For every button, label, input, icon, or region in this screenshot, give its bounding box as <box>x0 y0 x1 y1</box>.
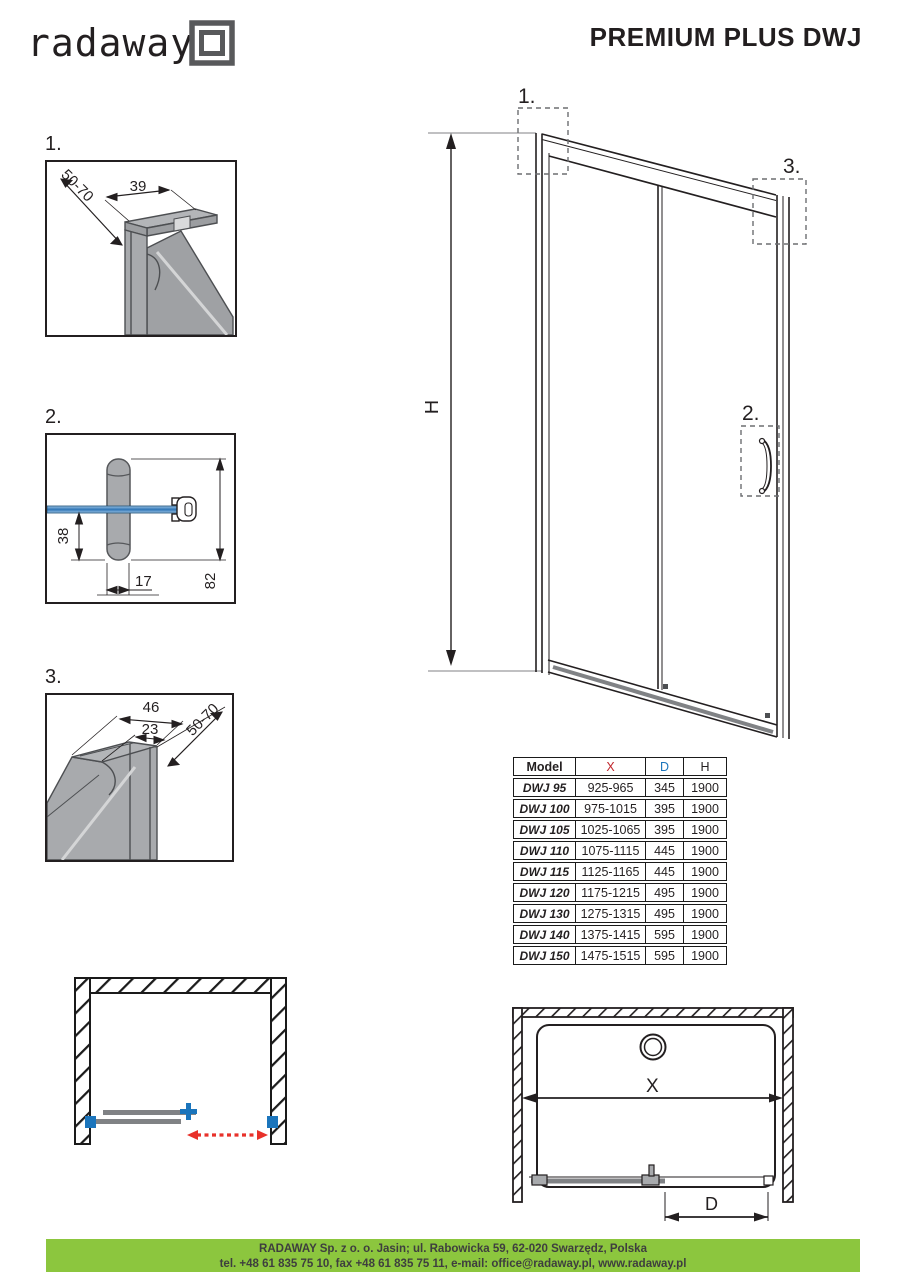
value-cell: 925-965 <box>576 779 646 796</box>
value-cell: 1125-1165 <box>576 863 646 880</box>
dim-38: 38 <box>55 528 72 545</box>
logo-outer-square-icon <box>192 23 232 63</box>
value-cell: 1475-1515 <box>576 947 646 964</box>
value-cell: 345 <box>646 779 684 796</box>
detail-3-label: 3. <box>45 666 62 689</box>
detail-1-box: 39 50-70 <box>45 160 237 337</box>
model-cell: DWJ 150 <box>514 947 576 964</box>
model-cell: DWJ 120 <box>514 884 576 901</box>
door-elevation-drawing: H 1. 3. 2. <box>425 75 906 747</box>
detail-2-drawing: 38 17 82 <box>47 435 234 602</box>
value-cell: 1075-1115 <box>576 842 646 859</box>
dim-17: 17 <box>135 573 152 590</box>
footer-bar: RADAWAY Sp. z o. o. Jasin; ul. Rabowicka… <box>46 1239 860 1272</box>
value-cell: 1900 <box>684 800 726 817</box>
shower-tray <box>537 1025 775 1187</box>
value-cell: 445 <box>646 863 684 880</box>
table-row: DWJ 1101075-11154451900 <box>513 841 727 860</box>
table-row: DWJ 1151125-11654451900 <box>513 862 727 881</box>
value-cell: 1900 <box>684 905 726 922</box>
dim-46: 46 <box>143 699 160 716</box>
door-handle-icon <box>760 439 772 494</box>
value-cell: 1275-1315 <box>576 905 646 922</box>
model-cell: DWJ 115 <box>514 863 576 880</box>
d-dimension-label: D <box>705 1194 718 1214</box>
value-cell: 1900 <box>684 884 726 901</box>
value-cell: 595 <box>646 926 684 943</box>
value-cell: 445 <box>646 842 684 859</box>
detail-2-box: 38 17 82 <box>45 433 236 604</box>
detail-3-box: 46 23 50-70 <box>45 693 234 862</box>
dim-23: 23 <box>142 721 159 738</box>
table-header-row: ModelXDH <box>513 757 727 776</box>
detail-3-drawing: 46 23 50-70 <box>47 695 232 860</box>
value-cell: 495 <box>646 884 684 901</box>
glass-panel-section <box>47 506 177 513</box>
dim-50-70: 50-70 <box>183 700 222 739</box>
value-cell: 1025-1065 <box>576 821 646 838</box>
value-cell: 1375-1415 <box>576 926 646 943</box>
height-label: H <box>425 400 443 414</box>
datasheet-page: radaway PREMIUM PLUS DWJ 1. <box>0 0 906 1280</box>
model-cell: DWJ 100 <box>514 800 576 817</box>
model-cell: DWJ 140 <box>514 926 576 943</box>
column-header: D <box>646 758 684 775</box>
detail-1-drawing: 39 50-70 <box>47 162 235 335</box>
value-cell: 1175-1215 <box>576 884 646 901</box>
detail-1-label: 1. <box>45 133 62 156</box>
value-cell: 1900 <box>684 842 726 859</box>
value-cell: 1900 <box>684 821 726 838</box>
model-cell: DWJ 105 <box>514 821 576 838</box>
elevation-marker-1: 1. <box>518 85 536 108</box>
value-cell: 395 <box>646 821 684 838</box>
radaway-logo: radaway <box>27 14 267 70</box>
elevation-marker-3: 3. <box>783 155 801 178</box>
slide-direction-arrow <box>187 1130 268 1140</box>
value-cell: 975-1015 <box>576 800 646 817</box>
height-dimension: H <box>425 133 456 666</box>
dim-39: 39 <box>130 178 147 195</box>
column-header: X <box>576 758 646 775</box>
dim-82: 82 <box>202 573 219 590</box>
size-table: ModelXDHDWJ 95925-9653451900DWJ 100975-1… <box>513 757 727 965</box>
value-cell: 1900 <box>684 863 726 880</box>
dim-50-70: 50-70 <box>58 166 97 205</box>
value-cell: 1900 <box>684 926 726 943</box>
value-cell: 1900 <box>684 947 726 964</box>
corner-profile-isometric <box>47 742 157 860</box>
elevation-marker-2: 2. <box>742 402 760 425</box>
value-cell: 1900 <box>684 779 726 796</box>
footer-address: RADAWAY Sp. z o. o. Jasin; ul. Rabowicka… <box>46 1242 860 1257</box>
footer-contact: tel. +48 61 835 75 10, fax +48 61 835 75… <box>46 1257 860 1272</box>
table-row: DWJ 1051025-10653951900 <box>513 820 727 839</box>
logo-inner-square-icon <box>202 33 223 54</box>
d-dimension: D <box>665 1192 768 1222</box>
table-row: DWJ 100975-10153951900 <box>513 799 727 818</box>
wall-profile-isometric <box>125 209 233 335</box>
table-row: DWJ 1201175-12154951900 <box>513 883 727 902</box>
table-row: DWJ 1401375-14155951900 <box>513 925 727 944</box>
model-cell: DWJ 95 <box>514 779 576 796</box>
door-frame <box>428 133 789 739</box>
model-cell: DWJ 130 <box>514 905 576 922</box>
detail-2-label: 2. <box>45 406 62 429</box>
table-row: DWJ 1501475-15155951900 <box>513 946 727 965</box>
column-header: Model <box>514 758 576 775</box>
value-cell: 395 <box>646 800 684 817</box>
x-dimension-label: X <box>646 1076 659 1097</box>
value-cell: 595 <box>646 947 684 964</box>
table-row: DWJ 95925-9653451900 <box>513 778 727 797</box>
plan-view-drawing: X D <box>505 1000 800 1225</box>
table-row: DWJ 1301275-13154951900 <box>513 904 727 923</box>
page-title: PREMIUM PLUS DWJ <box>590 22 862 53</box>
sliding-schematic-drawing <box>70 972 295 1152</box>
mount-points <box>85 1103 278 1128</box>
column-header: H <box>684 758 726 775</box>
model-cell: DWJ 110 <box>514 842 576 859</box>
logo-text: radaway <box>27 21 194 65</box>
value-cell: 495 <box>646 905 684 922</box>
